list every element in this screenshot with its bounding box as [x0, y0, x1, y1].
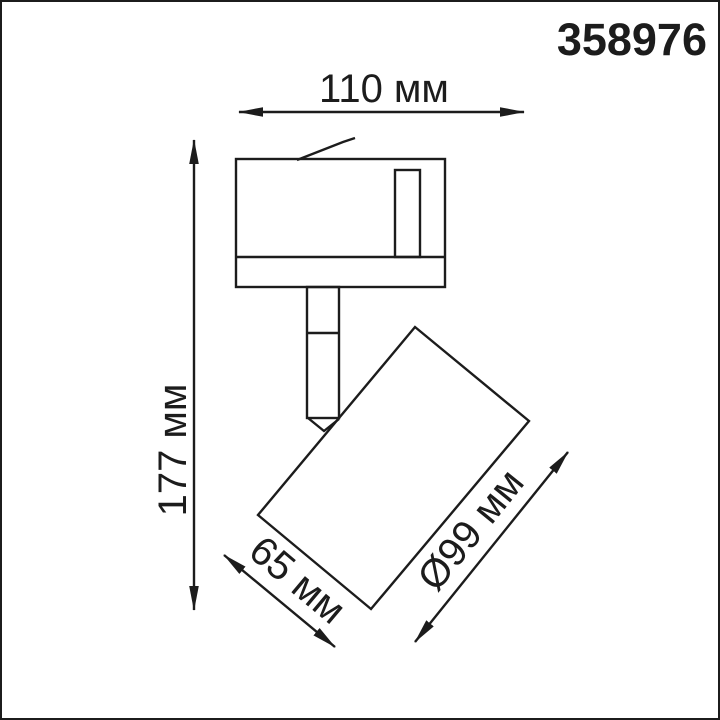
drawing-frame: 110 мм 177 мм 65 мм Ø99 мм 358976 [0, 0, 720, 720]
release-lever-line [297, 138, 355, 160]
technical-drawing-svg: 110 мм 177 мм 65 мм Ø99 мм 358976 [2, 2, 718, 718]
swivel-stem-outline [307, 287, 339, 418]
product-code: 358976 [557, 14, 707, 65]
adapter-slot [395, 170, 420, 257]
lamp-diameter-dimension-label: Ø99 мм [409, 461, 532, 599]
track-adapter-outline [236, 159, 445, 287]
height-dimension-label: 177 мм [151, 384, 195, 517]
width-dimension-label: 110 мм [319, 67, 449, 111]
